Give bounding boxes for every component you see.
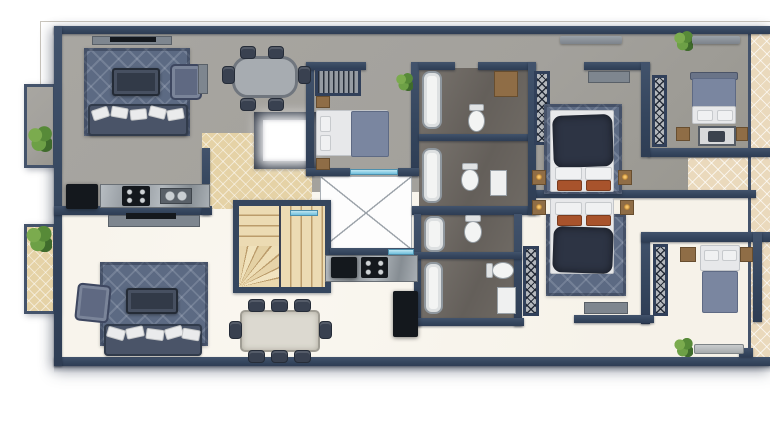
bed-pillow (585, 202, 612, 215)
bed-accent-pillow (557, 215, 582, 226)
wall-bath-divider-upper (419, 134, 531, 141)
dining-chair (271, 350, 288, 363)
bathroom3-toilet (464, 221, 482, 243)
lower-dining-table (240, 310, 320, 352)
dining-chair (240, 46, 256, 59)
bathroom1-bathtub (422, 71, 442, 129)
wall-corner-bedroom-bottom (648, 148, 770, 157)
bathroom4-toilet-tank (486, 263, 493, 278)
upper-sofa (88, 104, 188, 136)
upper-coffee-table (112, 68, 160, 96)
dining-chair (271, 299, 288, 312)
bedroom1-open-closet (315, 68, 361, 96)
bed-accent-pillow (586, 180, 611, 191)
bathroom2-toilet (461, 169, 479, 191)
dining-chair (294, 350, 311, 363)
upper-sideboard (198, 64, 208, 94)
bathroom3-toilet-tank (465, 215, 481, 222)
lower-balcony-plant-icon (26, 226, 52, 252)
bed-accent-pillow (557, 180, 582, 191)
bed-pillow (722, 250, 737, 261)
dining-chair (319, 321, 332, 339)
floor-plan-canvas (0, 0, 770, 430)
stair-winder-treads (239, 246, 279, 287)
bed-blanket (552, 226, 614, 274)
bathroom1-toilet-tank (469, 104, 484, 111)
wall-master-lower-east (641, 232, 650, 324)
core-glass-b (388, 249, 414, 255)
dining-chair (298, 66, 311, 84)
corner-bedroom-ac-unit (692, 36, 740, 44)
bed-pillow (320, 116, 331, 132)
corner-lower-nightstand (740, 247, 753, 262)
corner-bed-blanket (692, 78, 736, 108)
corner-lower-wardrobe (653, 244, 668, 316)
bed-blanket (552, 114, 614, 168)
corner-bed-mattress (692, 106, 736, 124)
bathroom3-bathtub (424, 216, 445, 252)
corner-lower-bed (700, 245, 740, 271)
sofa-cushion (145, 328, 164, 341)
corner-lower-bench (694, 344, 744, 354)
corner-bedroom-wardrobe (652, 75, 667, 147)
core-glass-a (290, 210, 318, 216)
right-balcony-return (688, 158, 748, 191)
wall-perimeter-top (54, 26, 770, 34)
lower-sofa (104, 324, 202, 356)
sofa-cushion (181, 328, 201, 342)
sofa-cushion (91, 106, 111, 122)
sofa-cushion (106, 326, 126, 342)
bathroom2-bathtub (422, 148, 442, 203)
wall-corner-bedroom-lower-east (753, 232, 762, 322)
bathroom2-toilet-tank (462, 163, 478, 170)
dining-chair (229, 321, 242, 339)
bed-pillow (704, 250, 719, 261)
wall-perimeter-bottom (54, 357, 770, 366)
master-upper-bed (550, 110, 614, 192)
bedroom1-window-glass (350, 169, 398, 175)
corner-bedroom-nightstand (736, 127, 748, 141)
master-lower-wardrobe (523, 246, 539, 316)
upper-balcony-plant-icon (28, 126, 52, 152)
vanity-stool (708, 131, 725, 142)
lower-tv-icon (126, 213, 176, 219)
upper-tv-icon (110, 37, 156, 42)
elevator-cab (263, 120, 307, 161)
bed-pillow (555, 167, 582, 180)
bottom-wall-shadow (54, 366, 770, 373)
corner-bedroom-plant-icon (674, 31, 693, 51)
bed-blanket (351, 111, 389, 157)
stair-treads-upper (239, 206, 279, 246)
master-lower-bed (550, 198, 614, 274)
lower-coffee-table (126, 288, 178, 314)
lower-refrigerator (393, 291, 418, 337)
bed-pillow (585, 167, 612, 180)
dining-chair (268, 98, 284, 111)
sofa-cushion (110, 106, 129, 120)
open-shaft-x (320, 176, 412, 250)
bed-pillow (697, 110, 713, 121)
bathroom2-washbasin (490, 170, 507, 196)
dining-chair (240, 98, 256, 111)
wall-bath-top-a (419, 62, 455, 70)
upper-refrigerator (66, 184, 98, 209)
bathroom4-washbasin (497, 287, 516, 314)
dining-chair (268, 46, 284, 59)
wall-perimeter-left (54, 26, 62, 366)
bed-pillow (555, 202, 582, 215)
bed-accent-pillow (586, 215, 611, 226)
bed-pillow (320, 135, 331, 151)
corner-lower-bed-blanket (702, 271, 738, 313)
dining-chair (248, 299, 265, 312)
bed-pillow (717, 110, 733, 121)
wall-corner-bedroom-lower-top (641, 232, 770, 242)
lower-oven (331, 257, 357, 278)
corner-bedroom-nightstand (676, 127, 690, 141)
stair-treads (279, 206, 325, 287)
corner-lower-nightstand (680, 247, 696, 262)
bedroom1-nightstand (316, 96, 330, 108)
master-upper-ac-unit (560, 36, 622, 44)
sofa-cushion (166, 108, 185, 122)
table-lamp-icon (536, 204, 542, 210)
bathroom4-bathtub (424, 262, 443, 314)
upper-kitchen-counter (100, 184, 210, 208)
bathroom1-shelf (494, 71, 518, 97)
lower-cooktop-icon (361, 257, 388, 278)
dining-chair (222, 66, 235, 84)
wall-master-lower-south (574, 315, 654, 323)
table-lamp-icon (622, 174, 628, 180)
corner-lower-plant-icon (674, 338, 693, 357)
wall-bath-divider-lower (414, 252, 522, 259)
table-lamp-icon (624, 204, 630, 210)
property-outline-top (40, 21, 770, 22)
master-upper-dresser (588, 71, 630, 83)
upper-cooktop-icon (122, 186, 150, 206)
upper-kitchen-sink (160, 188, 192, 204)
sofa-cushion (125, 325, 145, 340)
bedroom1-nightstand (316, 158, 330, 170)
wall-bath-lower-bottom (414, 318, 524, 326)
bedroom1-bed (316, 110, 388, 156)
bathroom1-toilet (468, 110, 485, 132)
bathroom4-toilet (492, 262, 514, 279)
sofa-cushion (148, 105, 167, 120)
property-outline-left (40, 21, 41, 85)
lower-armchair (74, 282, 112, 323)
sofa-cushion (129, 108, 147, 121)
hallway-plant-icon (396, 73, 413, 91)
upper-dining-table (232, 56, 298, 98)
dining-chair (248, 350, 265, 363)
table-lamp-icon (536, 174, 542, 180)
master-lower-console (584, 302, 628, 314)
wall-bedroom1-bottom-b (398, 168, 419, 176)
wall-corner-bedroom-left (641, 62, 650, 157)
dining-chair (294, 299, 311, 312)
